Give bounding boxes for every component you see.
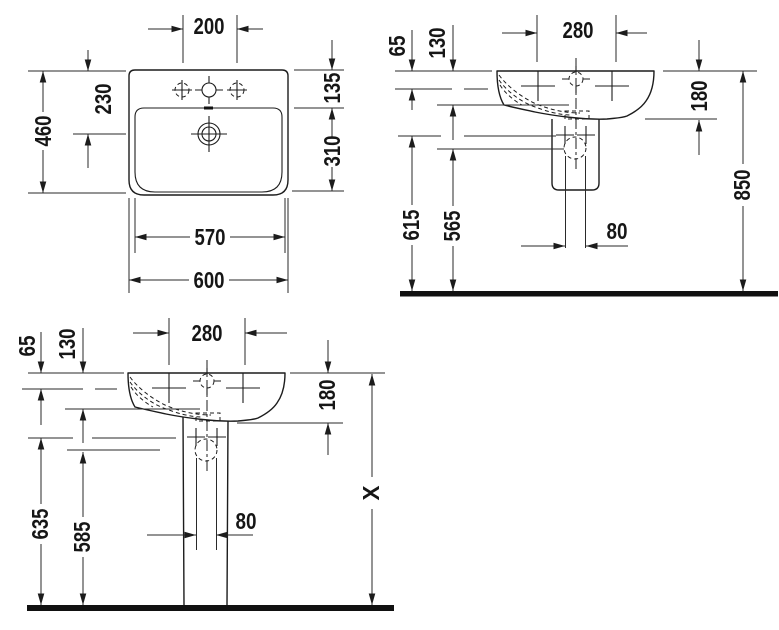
dim-plan-overall-depth: 460	[30, 116, 56, 147]
dim-wall-fixing-spacing: 280	[563, 17, 594, 43]
dim-wall-rim-inner: 65	[384, 35, 410, 56]
dim-pedestal-rim-bowl: 130	[54, 329, 80, 360]
technical-drawing-page: 200 460 230 135 310 570 600	[0, 0, 779, 630]
floor-line	[400, 291, 778, 297]
dim-plan-basin-depth: 310	[319, 136, 345, 167]
pedestal-outline	[183, 416, 228, 605]
wall-mounted-view: 280 65 130 180 615 565 80 850	[384, 15, 778, 297]
dim-pedestal-total-height: X	[358, 485, 384, 501]
dim-plan-overall-width: 600	[194, 267, 225, 293]
dim-pedestal-fixing-spacing: 280	[192, 320, 223, 346]
dim-wall-drain-height: 565	[439, 210, 465, 241]
dim-wall-rim-height: 850	[729, 170, 755, 201]
dim-wall-apron-height: 180	[686, 81, 712, 112]
dim-wall-fixing-height: 615	[398, 209, 424, 240]
pedestal-view: 280 65 130 180 635 585 80 X	[14, 318, 394, 611]
washbasin-dimension-drawing: 200 460 230 135 310 570 600	[0, 0, 779, 630]
dim-plan-rim-to-drain: 230	[90, 84, 116, 115]
dim-plan-basin-width: 570	[195, 224, 226, 250]
dim-pedestal-outlet-spacing: 80	[236, 508, 257, 534]
floor-line	[27, 605, 394, 611]
dim-pedestal-rim-inner: 65	[14, 335, 40, 356]
dim-wall-outlet-spacing: 80	[607, 218, 628, 244]
dim-pedestal-drain-height: 585	[69, 521, 95, 552]
dim-pedestal-fixing-height: 635	[27, 508, 53, 539]
dim-plan-tap-spacing: 200	[194, 13, 225, 39]
dim-pedestal-apron-height: 180	[314, 380, 340, 411]
dim-plan-rim-to-basin: 135	[319, 72, 345, 103]
plan-view: 200 460 230 135 310 570 600	[28, 13, 345, 293]
dim-wall-rim-bowl: 130	[424, 28, 450, 59]
